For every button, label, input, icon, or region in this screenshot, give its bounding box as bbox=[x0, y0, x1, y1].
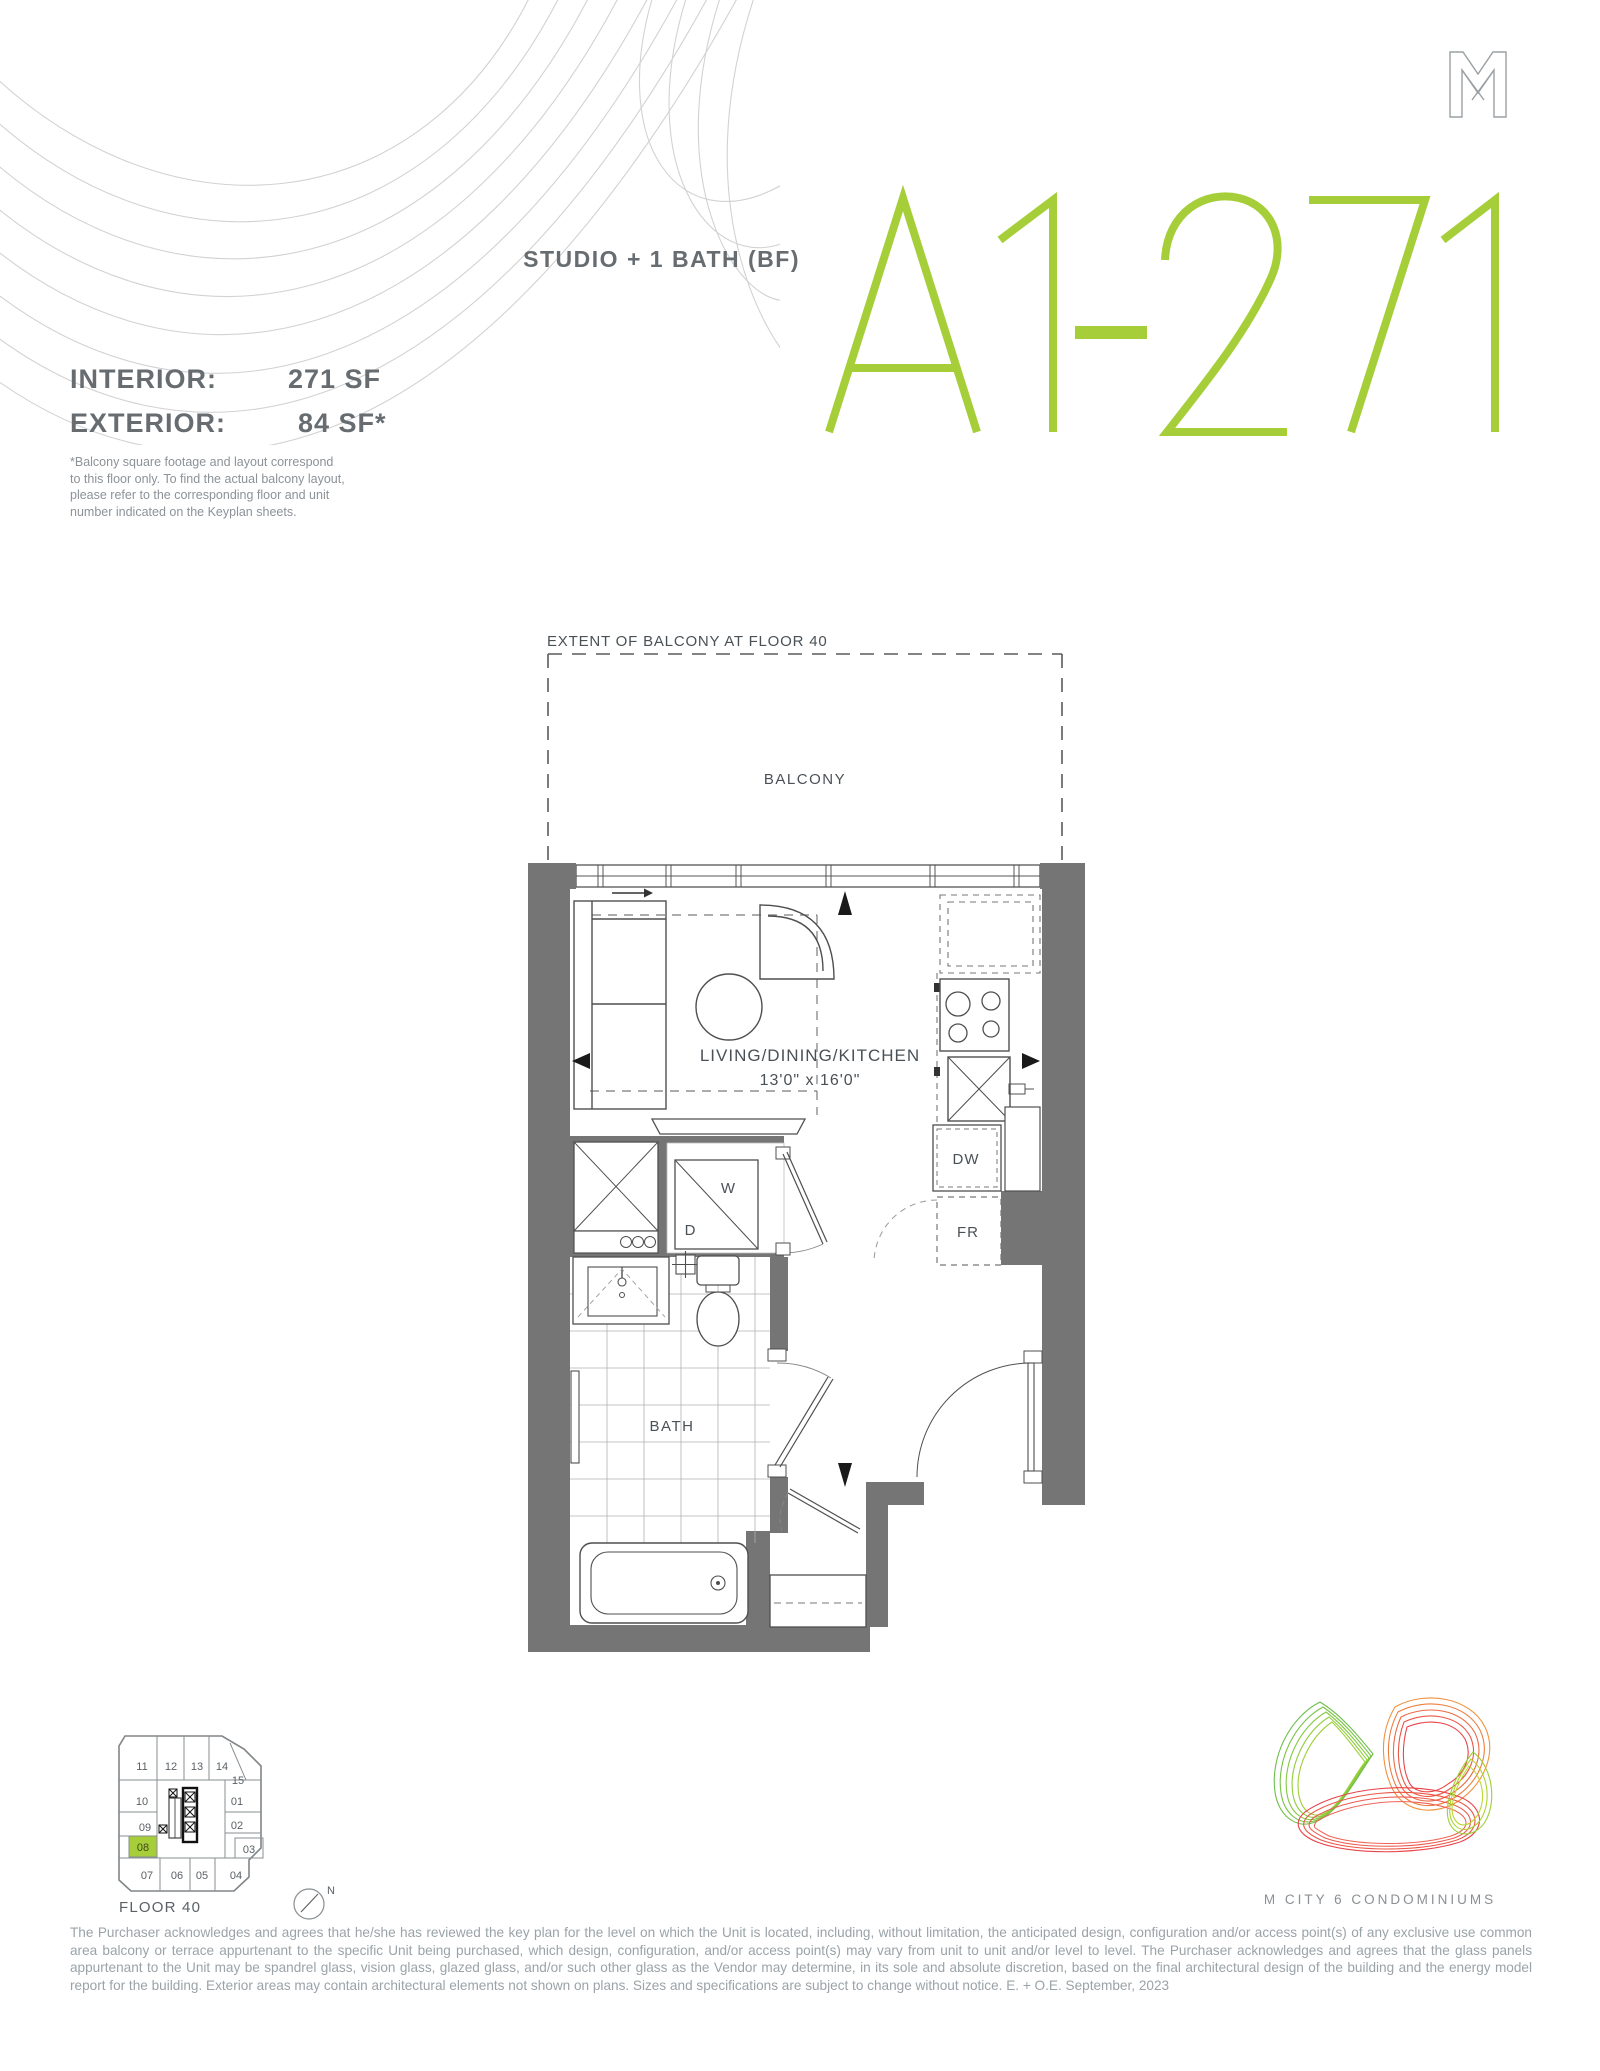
keyplan-unit-03: 03 bbox=[243, 1844, 255, 1856]
bath-label: BATH bbox=[650, 1418, 695, 1435]
bath-door bbox=[768, 1349, 833, 1477]
window-wall bbox=[576, 865, 1040, 887]
dishwasher-label: DW bbox=[953, 1151, 980, 1168]
lounge-chair bbox=[760, 905, 834, 979]
spec-row-interior: INTERIOR: 271 SF bbox=[70, 364, 387, 408]
balcony-footnote: *Balcony square footage and layout corre… bbox=[70, 454, 380, 520]
north-label: N bbox=[327, 1885, 335, 1897]
balcony-outline bbox=[548, 654, 1062, 863]
footnote-line: to this floor only. To find the actual b… bbox=[70, 471, 380, 488]
m-logo-icon bbox=[1444, 48, 1514, 122]
window-slide-arrow bbox=[612, 889, 653, 898]
floorplan-sheet: { "header": { "unit_type": "STUDIO + 1 B… bbox=[0, 0, 1600, 2071]
balcony-label: BALCONY bbox=[764, 771, 846, 788]
keyplan-unit-06: 06 bbox=[171, 1870, 183, 1882]
towel-bar bbox=[571, 1371, 579, 1463]
keyplan-unit-12: 12 bbox=[165, 1761, 177, 1773]
keyplan: 11 12 13 14 15 10 01 09 02 08 03 07 06 0… bbox=[85, 1700, 345, 1920]
bath-vanity bbox=[573, 1257, 669, 1324]
bath-niche bbox=[672, 1251, 699, 1278]
keyplan-unit-14: 14 bbox=[216, 1761, 228, 1773]
entry-door bbox=[917, 1351, 1042, 1483]
keyplan-floor-label: FLOOR 40 bbox=[119, 1899, 201, 1916]
interior-value: 271 SF bbox=[288, 364, 381, 395]
floor-plan: EXTENT OF BALCONY AT FLOOR 40 BALCONY bbox=[500, 615, 1120, 1675]
washer-label: W bbox=[721, 1180, 736, 1197]
keyplan-unit-15: 15 bbox=[232, 1775, 244, 1787]
keyplan-unit-01: 01 bbox=[231, 1796, 243, 1808]
keyplan-unit-07: 07 bbox=[141, 1870, 153, 1882]
entry-access-arrow bbox=[838, 1463, 852, 1487]
north-compass-icon: N bbox=[294, 1885, 335, 1919]
keyplan-unit-04: 04 bbox=[230, 1870, 242, 1882]
keyplan-unit-09: 09 bbox=[139, 1822, 151, 1834]
keyplan-unit-08: 08 bbox=[137, 1842, 149, 1854]
dryer-label: D bbox=[685, 1222, 696, 1239]
unit-code bbox=[795, 160, 1525, 450]
toilet bbox=[697, 1256, 739, 1346]
keyplan-core bbox=[159, 1788, 197, 1842]
sofa bbox=[574, 901, 666, 1109]
footnote-line: please refer to the corresponding floor … bbox=[70, 487, 380, 504]
bathtub bbox=[580, 1543, 748, 1623]
keyplan-unit-13: 13 bbox=[191, 1761, 203, 1773]
right-access-arrow bbox=[1022, 1053, 1040, 1069]
footnote-line: number indicated on the Keyplan sheets. bbox=[70, 504, 380, 521]
spec-row-exterior: EXTERIOR: 84 SF* bbox=[70, 408, 387, 452]
keyplan-unit-05: 05 bbox=[196, 1870, 208, 1882]
area-specs: INTERIOR: 271 SF EXTERIOR: 84 SF* bbox=[70, 364, 387, 452]
interior-label: INTERIOR: bbox=[70, 364, 230, 395]
dining-table bbox=[696, 974, 762, 1040]
fridge-door-swing bbox=[874, 1200, 937, 1263]
exterior-label: EXTERIOR: bbox=[70, 408, 230, 439]
balcony-access-arrow bbox=[838, 891, 852, 915]
bathroom: BATH bbox=[570, 1251, 833, 1623]
left-access-arrow bbox=[572, 1053, 590, 1069]
brand-name: M CITY 6 CONDOMINIUMS bbox=[1235, 1892, 1525, 1907]
closet-x bbox=[574, 1142, 658, 1253]
keyplan-unit-10: 10 bbox=[136, 1796, 148, 1808]
legal-text: The Purchaser acknowledges and agrees th… bbox=[70, 1924, 1532, 1994]
living-dims-label: 13'0" x 16'0" bbox=[760, 1072, 861, 1089]
washer-dryer-closet: W D bbox=[667, 1143, 827, 1255]
keyplan-unit-02: 02 bbox=[231, 1820, 243, 1832]
counter-peninsula bbox=[652, 1119, 805, 1134]
keyplan-unit-11: 11 bbox=[136, 1761, 147, 1773]
brand-logo-icon bbox=[1245, 1662, 1515, 1880]
cooktop bbox=[940, 979, 1009, 1051]
balcony-extent-label: EXTENT OF BALCONY AT FLOOR 40 bbox=[547, 633, 828, 650]
footnote-line: *Balcony square footage and layout corre… bbox=[70, 454, 380, 471]
exterior-value: 84 SF* bbox=[298, 408, 387, 439]
fridge-label: FR bbox=[957, 1224, 979, 1241]
living-label: LIVING/DINING/KITCHEN bbox=[700, 1046, 920, 1065]
unit-type-label: STUDIO + 1 BATH (BF) bbox=[300, 246, 800, 273]
